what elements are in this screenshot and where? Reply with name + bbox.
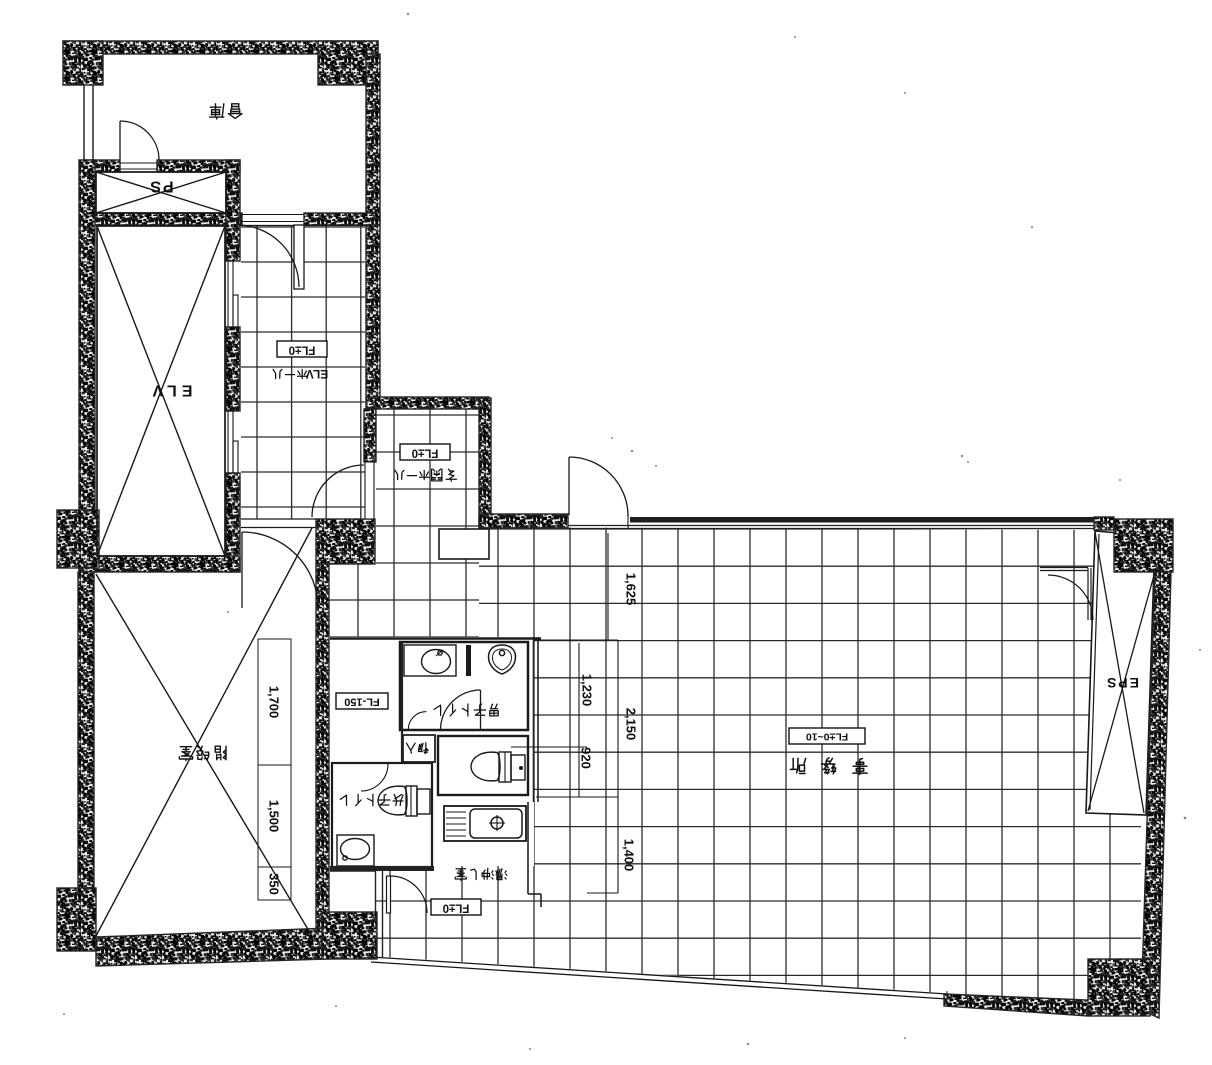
svg-text:PS: PS xyxy=(148,178,173,195)
svg-text:FL-150: FL-150 xyxy=(344,696,379,708)
svg-text:FL±0: FL±0 xyxy=(289,344,316,356)
svg-text:FL±0: FL±0 xyxy=(412,447,439,459)
svg-text:1,500: 1,500 xyxy=(267,800,282,833)
svg-text:350: 350 xyxy=(267,873,282,895)
svg-text:920: 920 xyxy=(579,747,594,769)
svg-text:2,150: 2,150 xyxy=(624,708,639,741)
svg-text:1,625: 1,625 xyxy=(624,573,639,606)
svg-text:FL±0: FL±0 xyxy=(443,902,470,914)
svg-text:ELV: ELV xyxy=(148,382,193,399)
svg-text:1,400: 1,400 xyxy=(622,839,637,872)
svg-text:1,230: 1,230 xyxy=(580,674,595,707)
svg-text:EPS: EPS xyxy=(1105,675,1139,691)
svg-text:1,700: 1,700 xyxy=(267,686,282,719)
svg-text:FL±0~10: FL±0~10 xyxy=(806,731,848,743)
svg-text:ELV: ELV xyxy=(306,367,328,381)
